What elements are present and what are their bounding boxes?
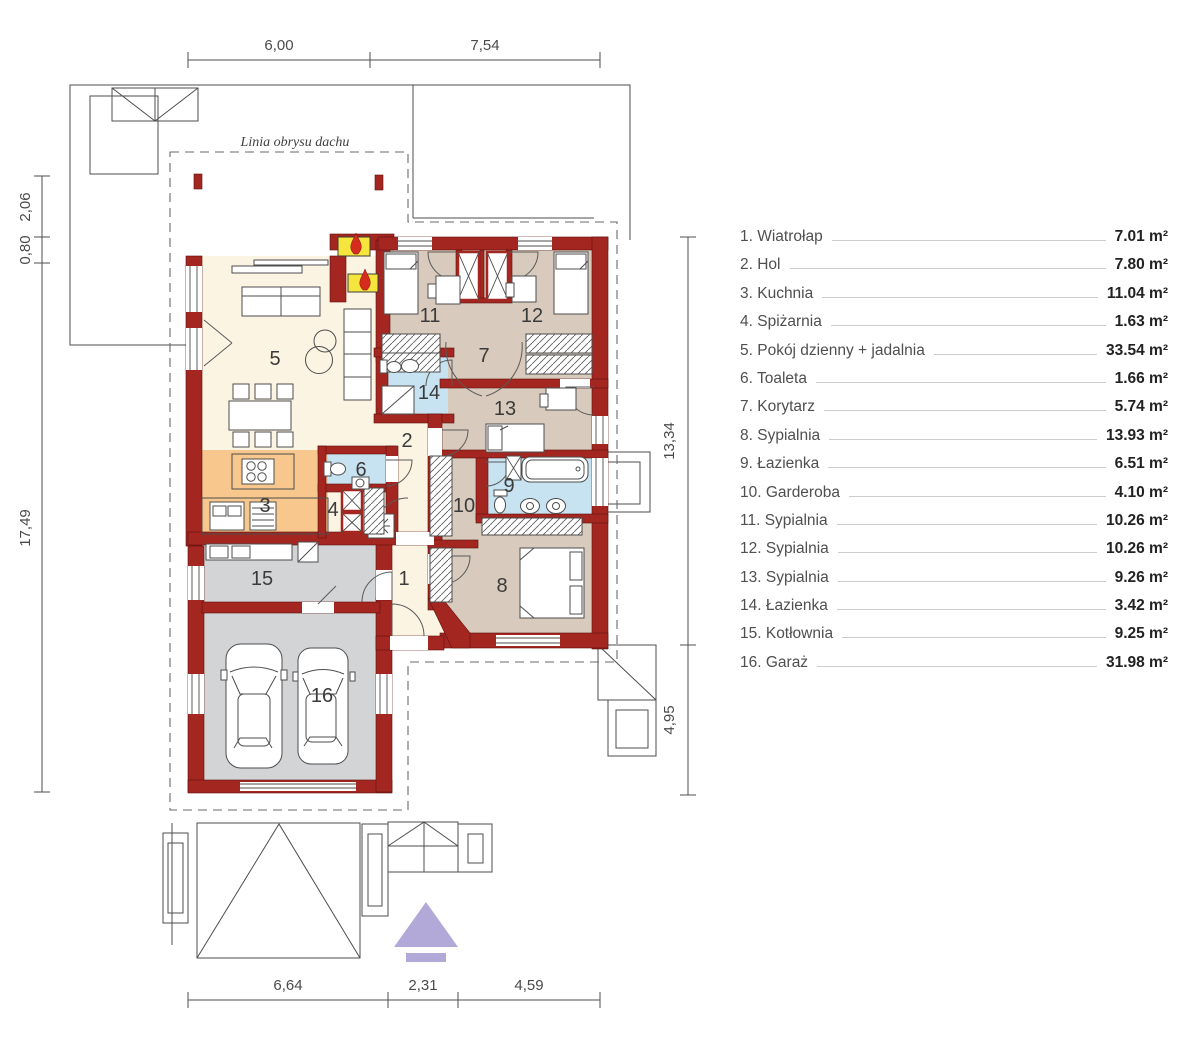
room-number-9: 9 [503,475,514,497]
window [592,458,608,506]
legend-room-name: 5. Pokój dzienny + jadalnia [740,342,925,360]
toilet [331,463,346,475]
boiler-room-fixtures [206,542,318,562]
room-number-14: 14 [418,382,440,404]
toilet [495,497,506,513]
legend-leader-line [934,343,1097,355]
legend-room-name: 8. Sypialnia [740,427,820,445]
dimension-left: 2,06 0,80 17,49 [17,176,50,792]
legend-room-name: 10. Garderoba [740,484,840,502]
window [188,566,204,600]
legend-leader-line [837,598,1106,610]
legend-room-name: 7. Korytarz [740,398,815,416]
window [592,416,608,444]
legend-leader-line [824,399,1106,411]
chair [277,432,293,447]
legend-row-10: 10. Garderoba4.10 m² [740,484,1168,512]
legend-leader-line [816,371,1106,383]
room-number-15: 15 [251,568,273,590]
hob [242,459,274,484]
legend-room-name: 1. Wiatrołap [740,228,823,246]
bathtub [522,457,588,482]
legend-leader-line [829,428,1097,440]
legend-leader-line [842,626,1106,638]
legend-leader-line [831,314,1106,326]
roof-outline-label: Linia obrysu dachu [240,135,350,150]
legend-row-8: 8. Sypialnia13.93 m² [740,427,1168,455]
legend-room-name: 13. Sypialnia [740,569,829,587]
tv-console [232,266,302,273]
legend-leader-line [828,456,1105,468]
dim-label: 2,06 [17,192,34,221]
legend-leader-line [817,655,1097,667]
desk [546,388,576,410]
legend-leader-line [838,541,1097,553]
dim-label: 13,34 [661,422,678,460]
legend-room-area: 1.66 m² [1115,370,1168,388]
floor-plan-drawing: Linia obrysu dachu [0,0,720,1058]
floor-plan-page: Linia obrysu dachu [0,0,1200,1058]
legend-room-area: 7.01 m² [1115,228,1168,246]
room-number-11: 11 [420,305,441,327]
dim-label: 17,49 [17,509,34,547]
legend-room-name: 16. Garaż [740,654,808,672]
legend-room-name: 2. Hol [740,256,781,274]
washbasin [402,360,419,373]
desk-chair [540,394,548,407]
legend-row-12: 12. Sypialnia10.26 m² [740,540,1168,568]
bathroom-14-fixtures [380,360,419,415]
legend-room-name: 4. Spiżarnia [740,313,822,331]
legend-room-area: 4.10 m² [1115,484,1168,502]
dim-label: 7,54 [470,37,499,54]
chair [277,384,293,399]
legend-leader-line [832,229,1106,241]
legend-leader-line [790,257,1106,269]
legend-leader-line [822,286,1098,298]
dim-label: 2,31 [408,977,437,994]
desk-chair [428,284,436,298]
legend-room-area: 11.04 m² [1107,285,1168,303]
window [188,674,204,714]
legend-row-6: 6. Toaleta1.66 m² [740,370,1168,398]
dim-label: 0,80 [17,235,34,264]
toilet [387,362,401,373]
room-number-1: 1 [398,568,409,590]
room-number-12: 12 [521,305,543,327]
dimension-right: 13,34 4,95 [661,237,696,795]
washbasin [521,499,540,514]
legend-row-15: 15. Kotłownia9.25 m² [740,625,1168,653]
legend-room-name: 9. Łazienka [740,455,819,473]
chair [233,384,249,399]
legend-row-16: 16. Garaż31.98 m² [740,654,1168,682]
legend-row-5: 5. Pokój dzienny + jadalnia33.54 m² [740,342,1168,370]
legend-room-area: 13.93 m² [1106,427,1168,445]
dim-label: 6,00 [264,37,293,54]
window [186,328,202,370]
room-number-6: 6 [355,459,366,481]
dim-label: 4,59 [514,977,543,994]
bedroom-8-furniture [520,548,584,618]
room-legend: 1. Wiatrołap7.01 m² 2. Hol7.80 m² 3. Kuc… [740,228,1168,682]
legend-leader-line [838,570,1106,582]
desk [436,276,460,304]
legend-room-name: 6. Toaleta [740,370,807,388]
room-number-4: 4 [327,499,338,521]
legend-room-area: 10.26 m² [1106,540,1168,558]
legend-room-area: 9.26 m² [1115,569,1168,587]
legend-room-name: 12. Sypialnia [740,540,829,558]
room-number-16: 16 [311,685,333,707]
garage-door [240,782,356,791]
legend-row-9: 9. Łazienka6.51 m² [740,455,1168,483]
room-number-7: 7 [478,345,489,367]
legend-row-2: 2. Hol7.80 m² [740,256,1168,284]
legend-room-name: 14. Łazienka [740,597,828,615]
legend-room-area: 33.54 m² [1106,342,1168,360]
legend-row-14: 14. Łazienka3.42 m² [740,597,1168,625]
window [376,674,392,714]
legend-room-area: 1.63 m² [1115,313,1168,331]
legend-row-3: 3. Kuchnia11.04 m² [740,285,1168,313]
legend-room-area: 7.80 m² [1115,256,1168,274]
legend-row-7: 7. Korytarz5.74 m² [740,398,1168,426]
dimension-bottom: 6,64 2,31 4,59 [188,977,600,1008]
legend-leader-line [837,513,1097,525]
legend-room-name: 15. Kotłownia [740,625,833,643]
legend-row-4: 4. Spiżarnia1.63 m² [740,313,1168,341]
dim-label: 6,64 [273,977,302,994]
car-1 [221,644,287,768]
chair [233,432,249,447]
window [496,635,560,646]
room-number-3: 3 [259,495,270,517]
chair [255,432,271,447]
desk-chair [506,283,514,297]
legend-row-11: 11. Sypialnia10.26 m² [740,512,1168,540]
chair [255,384,271,399]
legend-room-name: 11. Sypialnia [740,512,828,530]
legend-room-area: 10.26 m² [1106,512,1168,530]
dining-table [229,401,291,430]
legend-room-area: 3.42 m² [1115,597,1168,615]
pantry-shelves [342,490,362,532]
room-number-5: 5 [269,348,280,370]
driveway-outline [163,823,388,958]
legend-room-area: 5.74 m² [1115,398,1168,416]
window [398,237,432,250]
desk [512,276,536,302]
room-number-10: 10 [453,495,475,517]
entrance-arrow-icon [394,902,458,962]
legend-room-area: 31.98 m² [1106,654,1168,672]
room-number-8: 8 [496,575,507,597]
legend-row-1: 1. Wiatrołap7.01 m² [740,228,1168,256]
legend-room-area: 6.51 m² [1115,455,1168,473]
legend-room-name: 3. Kuchnia [740,285,813,303]
window [518,237,552,250]
legend-leader-line [849,485,1106,497]
legend-room-area: 9.25 m² [1115,625,1168,643]
window [186,266,202,312]
dim-label: 4,95 [661,705,678,734]
entrance-canopy-outline [388,822,492,872]
washbasin [547,499,566,514]
room-number-13: 13 [494,398,516,420]
room-number-2: 2 [401,430,412,452]
dimension-top: 6,00 7,54 [188,37,600,68]
legend-row-13: 13. Sypialnia9.26 m² [740,569,1168,597]
